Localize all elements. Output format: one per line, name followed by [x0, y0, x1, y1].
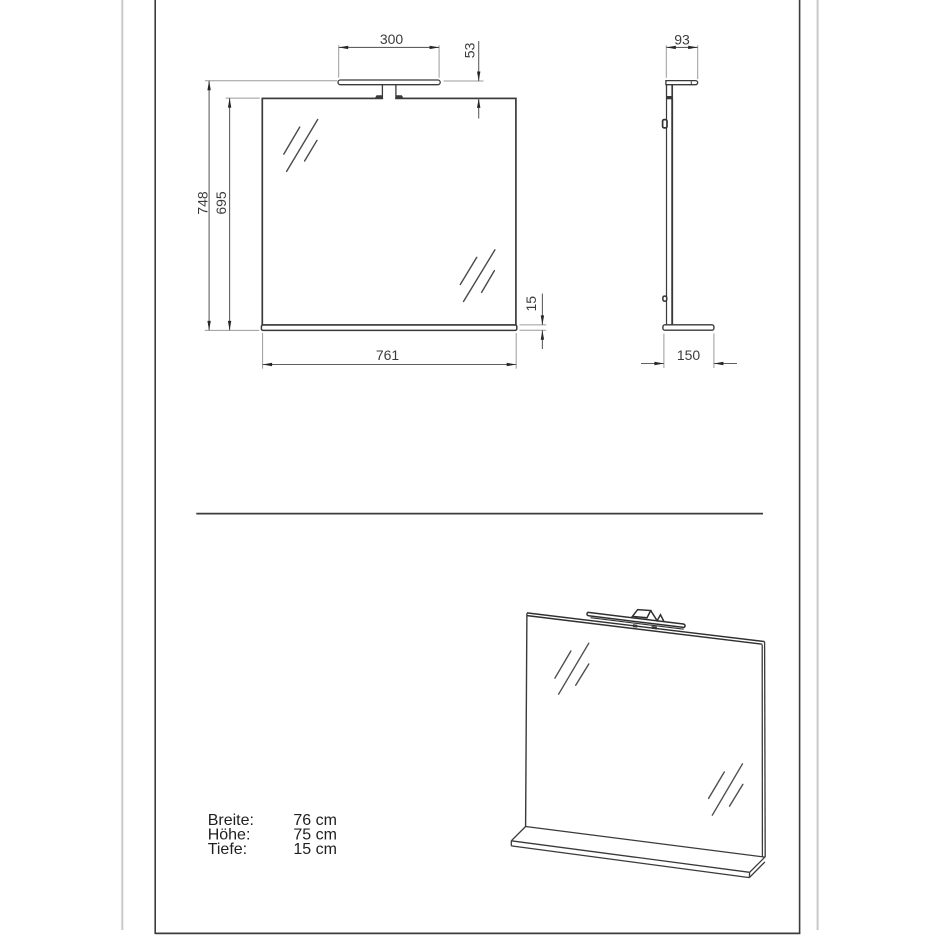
svg-text:761: 761: [376, 347, 400, 363]
svg-text:15 cm: 15 cm: [293, 841, 337, 858]
svg-text:300: 300: [380, 31, 404, 47]
svg-text:748: 748: [195, 191, 211, 215]
svg-text:Tiefe:: Tiefe:: [208, 841, 247, 858]
svg-text:695: 695: [213, 191, 229, 215]
svg-text:53: 53: [462, 42, 478, 58]
svg-text:93: 93: [674, 31, 690, 47]
svg-text:150: 150: [677, 347, 701, 363]
svg-text:15: 15: [523, 296, 539, 312]
